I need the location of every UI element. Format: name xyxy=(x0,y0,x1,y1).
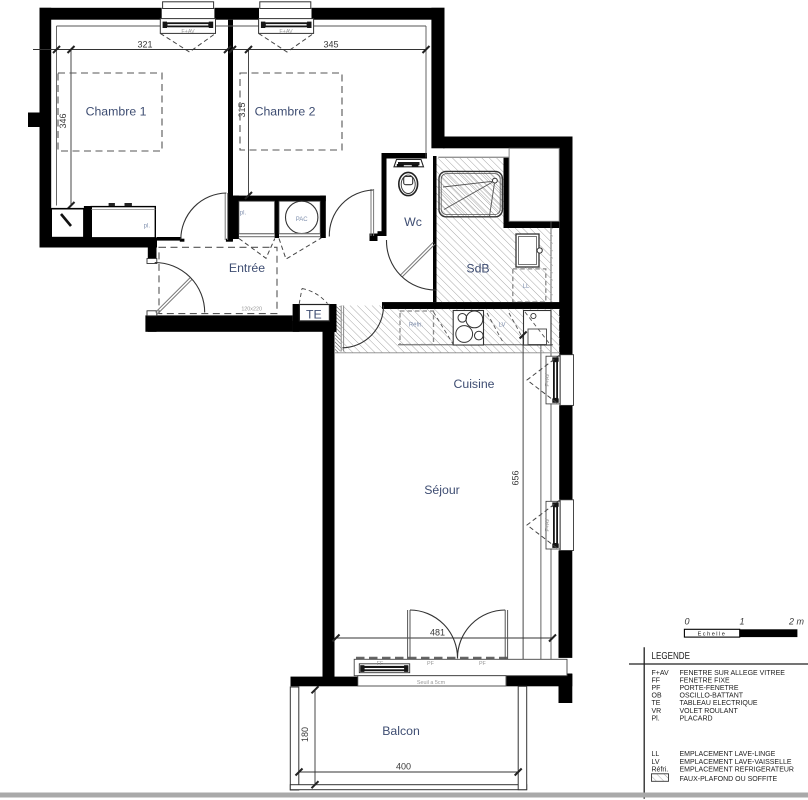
svg-text:Cuisine: Cuisine xyxy=(453,377,494,391)
svg-text:F+AV: F+AV xyxy=(652,670,670,677)
svg-text:PF: PF xyxy=(479,661,487,667)
svg-text:LV: LV xyxy=(499,323,506,329)
svg-text:346: 346 xyxy=(58,113,68,128)
svg-text:120x220: 120x220 xyxy=(241,307,262,313)
svg-text:315: 315 xyxy=(237,102,247,117)
svg-text:LV: LV xyxy=(652,759,660,766)
svg-text:PF: PF xyxy=(427,661,435,667)
svg-text:1: 1 xyxy=(740,617,745,627)
svg-text:F+AV: F+AV xyxy=(181,29,195,35)
svg-text:TE: TE xyxy=(306,308,322,322)
svg-text:FF: FF xyxy=(377,661,384,667)
svg-text:FAUX-PLAFOND OU SOFFITE: FAUX-PLAFOND OU SOFFITE xyxy=(680,776,778,783)
svg-text:481: 481 xyxy=(430,628,445,638)
svg-text:345: 345 xyxy=(323,40,338,50)
svg-text:LL: LL xyxy=(523,284,530,290)
svg-text:Séjour: Séjour xyxy=(424,483,460,497)
svg-text:F+AV: F+AV xyxy=(545,373,551,387)
svg-text:Balcon: Balcon xyxy=(382,724,420,738)
svg-text:OB: OB xyxy=(652,693,662,700)
svg-text:TABLEAU ELECTRIQUE: TABLEAU ELECTRIQUE xyxy=(680,700,758,707)
svg-text:FF: FF xyxy=(652,677,661,684)
svg-text:Entrée: Entrée xyxy=(229,261,265,275)
svg-text:PORTE-FENETRE: PORTE-FENETRE xyxy=(680,685,739,692)
svg-text:pl.: pl. xyxy=(240,211,247,217)
svg-text:OSCILLO-BATTANT: OSCILLO-BATTANT xyxy=(680,693,744,700)
svg-text:400: 400 xyxy=(396,762,411,772)
svg-text:pl.: pl. xyxy=(144,224,151,230)
svg-text:321: 321 xyxy=(137,40,152,50)
svg-text:SdB: SdB xyxy=(466,262,489,276)
svg-text:VR: VR xyxy=(652,708,662,715)
svg-text:EMPLACEMENT LAVE-VAISSELLE: EMPLACEMENT LAVE-VAISSELLE xyxy=(680,759,792,766)
svg-text:Echelle: Echelle xyxy=(698,632,727,638)
svg-text:2 m: 2 m xyxy=(788,617,805,627)
svg-text:Pl.: Pl. xyxy=(652,715,660,722)
svg-text:Wc: Wc xyxy=(404,215,422,229)
svg-text:LEGENDE: LEGENDE xyxy=(652,651,691,662)
svg-text:Réfri.: Réfri. xyxy=(652,766,669,773)
svg-text:FENETRE FIXE: FENETRE FIXE xyxy=(680,677,731,684)
svg-text:PLACARD: PLACARD xyxy=(680,715,713,722)
svg-text:LL: LL xyxy=(652,751,660,758)
svg-text:VOLET ROULANT: VOLET ROULANT xyxy=(680,708,739,715)
svg-text:Seuil a 5cm: Seuil a 5cm xyxy=(417,680,446,686)
svg-text:FENETRE SUR ALLEGE VITREE: FENETRE SUR ALLEGE VITREE xyxy=(680,670,786,677)
svg-text:F+AV: F+AV xyxy=(279,29,293,35)
svg-text:Réfri.: Réfri. xyxy=(409,323,424,329)
svg-text:PAC: PAC xyxy=(296,217,309,223)
svg-text:0: 0 xyxy=(685,617,690,627)
svg-text:EMPLACEMENT LAVE-LINGE: EMPLACEMENT LAVE-LINGE xyxy=(680,751,776,758)
svg-text:EMPLACEMENT REFRIGERATEUR: EMPLACEMENT REFRIGERATEUR xyxy=(680,766,794,773)
svg-text:Chambre 2: Chambre 2 xyxy=(255,105,316,119)
svg-text:Chambre 1: Chambre 1 xyxy=(86,105,147,119)
svg-text:180: 180 xyxy=(300,727,310,742)
svg-text:TE: TE xyxy=(652,700,661,707)
svg-text:PF: PF xyxy=(652,685,661,692)
svg-text:656: 656 xyxy=(511,470,521,485)
svg-text:F+AV: F+AV xyxy=(545,518,551,532)
